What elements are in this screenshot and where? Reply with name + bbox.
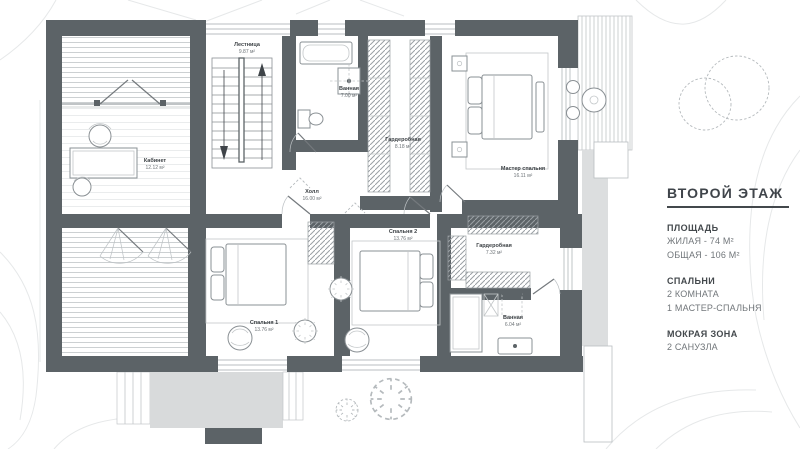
section-line: 2 КОМНАТА bbox=[667, 289, 789, 301]
pillow bbox=[420, 282, 433, 307]
pillow bbox=[211, 247, 224, 272]
section-line: 1 МАСТЕР-СПАЛЬНЯ bbox=[667, 303, 789, 315]
lower-patio bbox=[584, 346, 612, 442]
balcony-table bbox=[582, 88, 606, 112]
stair-up-arrow bbox=[258, 63, 266, 76]
lounge-chair bbox=[345, 328, 369, 352]
pillow bbox=[468, 107, 482, 134]
panel-title: ВТОРОЙ ЭТАЖ bbox=[667, 185, 789, 201]
panel-section-bedrooms: СПАЛЬНИ 2 КОМНАТА 1 МАСТЕР-СПАЛЬНЯ bbox=[667, 276, 789, 314]
tree-icon bbox=[679, 78, 731, 130]
room-label-bedroom-2: Спальня 213.76 м² bbox=[389, 229, 417, 242]
guest-chair bbox=[73, 178, 91, 196]
wicker-chair bbox=[292, 318, 318, 344]
bed-2 bbox=[360, 251, 420, 311]
info-panel: ВТОРОЙ ЭТАЖ ПЛОЩАДЬ ЖИЛАЯ - 74 М² ОБЩАЯ … bbox=[667, 185, 789, 356]
section-heading: ПЛОЩАДЬ bbox=[667, 223, 789, 233]
room-label-bedroom-1: Спальня 113.76 м² bbox=[250, 320, 278, 333]
terrace-step bbox=[205, 428, 262, 444]
section-heading: МОКРАЯ ЗОНА bbox=[667, 329, 789, 339]
title-rule bbox=[667, 206, 789, 208]
floor-plan-page: Лестница9.87 м² Ванная7.00 м² Гардеробна… bbox=[0, 0, 800, 449]
staircase bbox=[212, 58, 272, 168]
nightstand bbox=[452, 56, 467, 71]
left-terrace-deck bbox=[62, 228, 188, 356]
pillow bbox=[420, 254, 433, 279]
desk bbox=[70, 148, 137, 178]
panel-section-wet-zone: МОКРАЯ ЗОНА 2 САНУЗЛА bbox=[667, 329, 789, 354]
bottom-terrace bbox=[150, 372, 283, 428]
panel-section-area: ПЛОЩАДЬ ЖИЛАЯ - 74 М² ОБЩАЯ - 106 М² bbox=[667, 223, 789, 261]
right-balcony-deck bbox=[578, 16, 632, 150]
balcony-chair bbox=[567, 81, 580, 94]
balcony-chair bbox=[567, 107, 580, 120]
toilet bbox=[298, 110, 310, 128]
room-label-master-bedroom: Мастер спальня16.11 м² bbox=[501, 166, 545, 179]
master-bedroom-furniture bbox=[440, 53, 548, 202]
room-label-staircase: Лестница9.87 м² bbox=[234, 42, 260, 55]
pillow bbox=[211, 275, 224, 300]
shower bbox=[450, 294, 482, 352]
wardrobe-1 bbox=[368, 40, 430, 192]
room-label-wardrobe-2: Гардеробная7.32 м² bbox=[476, 243, 512, 256]
bed-1 bbox=[226, 244, 286, 305]
side-path bbox=[582, 150, 608, 346]
room-label-hall: Холл16.00 м² bbox=[302, 189, 321, 202]
master-bed bbox=[482, 75, 532, 139]
section-line: ЖИЛАЯ - 74 М² bbox=[667, 236, 789, 248]
room-label-bathroom-2: Ванная6.04 м² bbox=[503, 315, 523, 328]
office-balcony-deck bbox=[62, 36, 190, 105]
pillow bbox=[468, 77, 482, 104]
bush-icon bbox=[371, 379, 412, 420]
bush-icon bbox=[336, 399, 358, 421]
room-label-wardrobe-1: Гардеробная8.18 м² bbox=[385, 137, 421, 150]
planter bbox=[594, 142, 628, 178]
room-label-office: Кабинет12.12 м² bbox=[144, 158, 166, 171]
tree-icon bbox=[705, 56, 769, 120]
nightstand bbox=[452, 142, 467, 157]
section-line: 2 САНУЗЛА bbox=[667, 342, 789, 354]
bed-bench bbox=[536, 82, 544, 132]
lounge-chair bbox=[228, 326, 252, 350]
section-line: ОБЩАЯ - 106 М² bbox=[667, 250, 789, 262]
room-label-bathroom-1: Ванная7.00 м² bbox=[339, 86, 359, 99]
wicker-chair bbox=[328, 276, 354, 302]
closet bbox=[308, 222, 334, 264]
section-heading: СПАЛЬНИ bbox=[667, 276, 789, 286]
